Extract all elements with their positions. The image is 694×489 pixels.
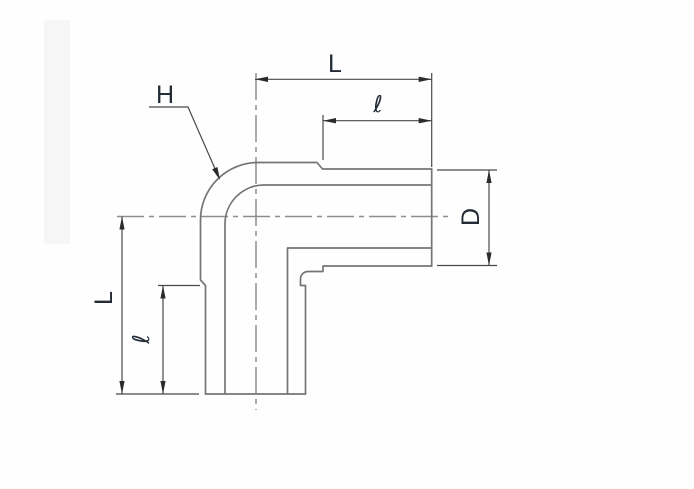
arrowhead-ell-left-up [160,286,165,299]
arrowhead-l-left-up [119,217,124,230]
label-length-left: L [90,291,118,305]
centerlines [117,73,448,410]
technical-drawing-canvas: L ℓ H D L ℓ [0,0,694,489]
arrowhead-ell-top-left [323,118,336,123]
scan-artifact-band [44,20,70,244]
arrowhead-l-top-left [255,77,268,82]
arrowhead-d-up [486,170,491,183]
arrowhead-l-top-right [419,77,432,82]
label-length-top: L [328,50,342,78]
arrowhead-h-leader [212,167,220,180]
arrowhead-d-down [486,253,491,266]
arrowhead-ell-left-down [160,381,165,394]
label-tube-insertion-left: ℓ [129,334,155,345]
arrowhead-ell-top-right [419,118,432,123]
fitting-outline [201,163,432,395]
inner-corner-profile-line [301,266,432,394]
bore-line-inner-corner [288,248,432,394]
label-tube-insertion-top: ℓ [372,92,383,118]
leader-line-h [149,107,216,171]
extension-lines [116,73,497,394]
label-diameter-right: D [457,208,485,226]
label-bend-height: H [156,81,174,109]
arrowhead-l-left-down [119,381,124,394]
elbow-fitting-drawing: L ℓ H D L ℓ [0,0,694,489]
